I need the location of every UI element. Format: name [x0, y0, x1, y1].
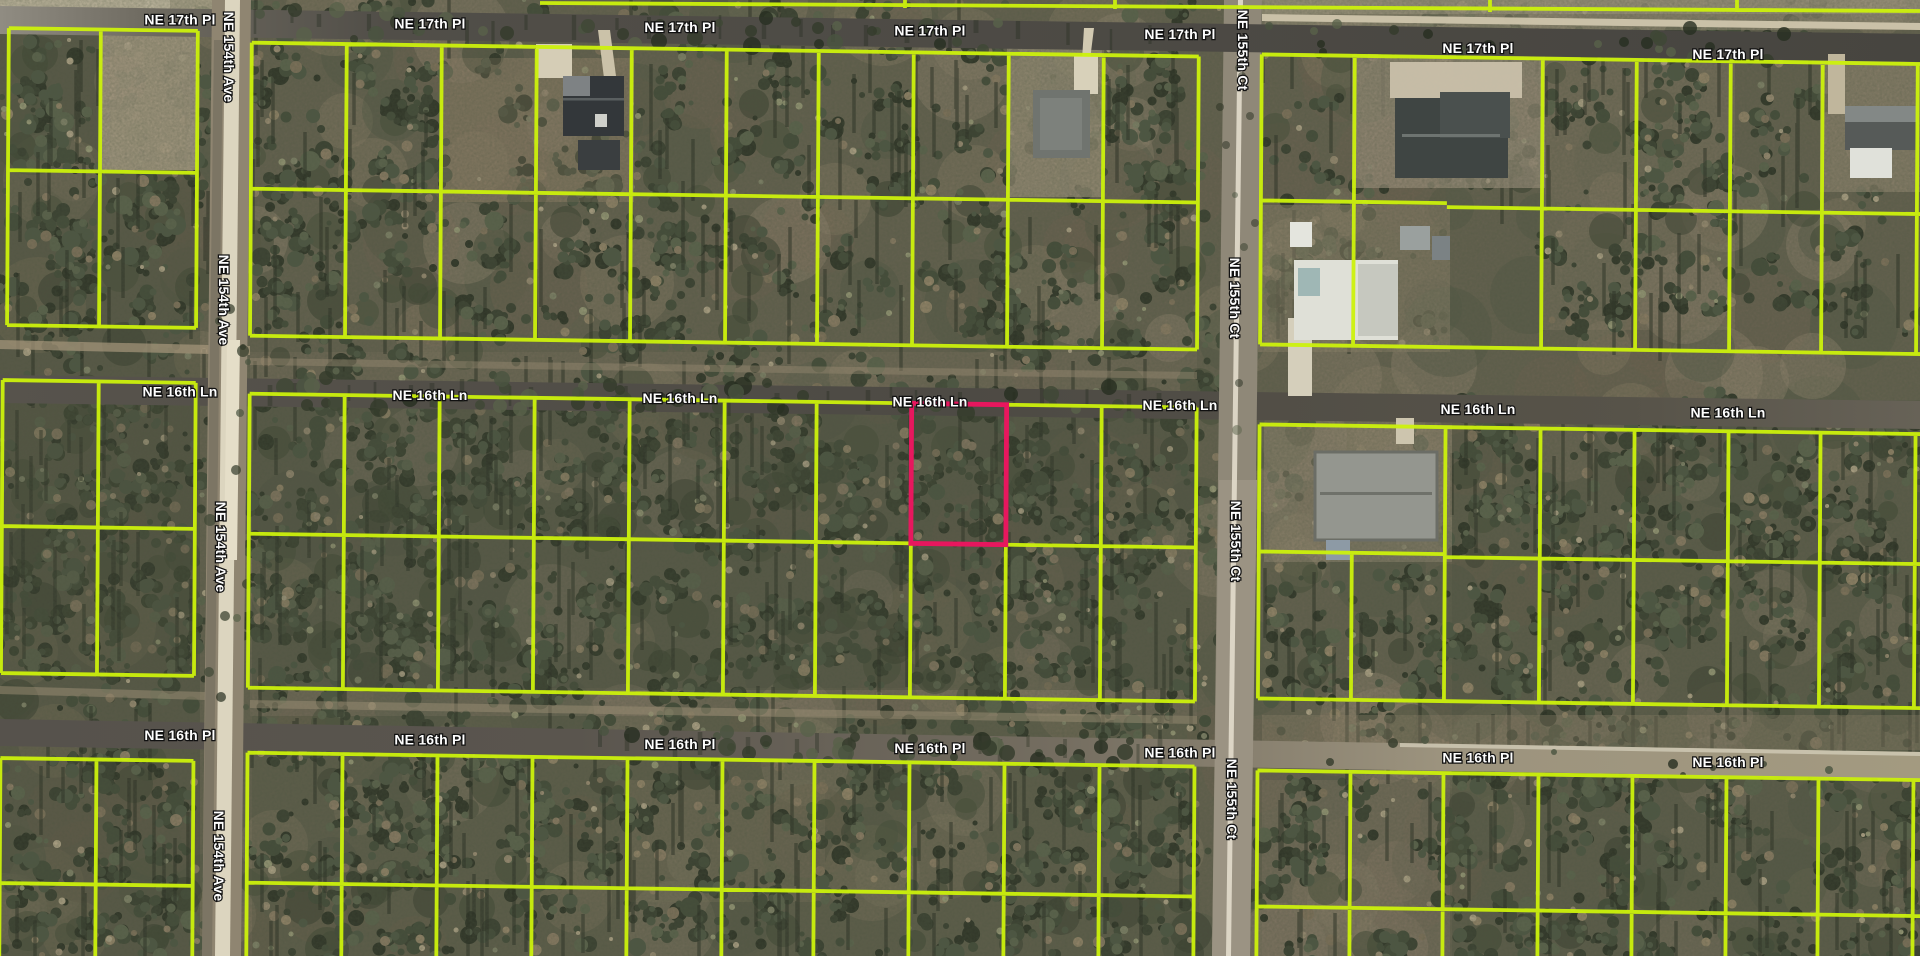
- svg-text:NE 154th Ave: NE 154th Ave: [213, 502, 229, 593]
- svg-text:NE 16th Ln: NE 16th Ln: [1440, 401, 1515, 417]
- svg-text:NE 155th Ct: NE 155th Ct: [1228, 501, 1244, 582]
- svg-text:NE 16th Ln: NE 16th Ln: [1142, 397, 1217, 413]
- svg-text:NE 16th Pl: NE 16th Pl: [394, 731, 465, 747]
- svg-text:NE 154th Ave: NE 154th Ave: [221, 12, 237, 103]
- svg-text:NE 16th Pl: NE 16th Pl: [894, 740, 965, 756]
- svg-text:NE 17th Pl: NE 17th Pl: [1692, 46, 1763, 62]
- svg-text:NE 16th Ln: NE 16th Ln: [142, 383, 217, 399]
- svg-text:NE 17th Pl: NE 17th Pl: [1442, 40, 1513, 56]
- svg-text:NE 155th Ct: NE 155th Ct: [1224, 759, 1240, 840]
- svg-text:NE 17th Pl: NE 17th Pl: [894, 23, 965, 39]
- svg-text:NE 17th Pl: NE 17th Pl: [144, 12, 215, 28]
- svg-text:NE 16th Ln: NE 16th Ln: [1690, 404, 1765, 420]
- svg-text:NE 16th Pl: NE 16th Pl: [1144, 744, 1215, 760]
- svg-text:NE 16th Pl: NE 16th Pl: [644, 736, 715, 752]
- svg-text:NE 17th Pl: NE 17th Pl: [644, 19, 715, 35]
- svg-text:NE 155th Ct: NE 155th Ct: [1227, 258, 1243, 339]
- svg-text:NE 155th Ct: NE 155th Ct: [1235, 10, 1251, 91]
- svg-text:NE 154th Ave: NE 154th Ave: [216, 255, 232, 346]
- svg-text:NE 17th Pl: NE 17th Pl: [394, 15, 465, 31]
- svg-text:NE 16th Ln: NE 16th Ln: [892, 394, 967, 410]
- svg-text:NE 16th Pl: NE 16th Pl: [144, 727, 215, 743]
- svg-text:NE 154th Ave: NE 154th Ave: [211, 811, 227, 902]
- svg-text:NE 16th Ln: NE 16th Ln: [642, 390, 717, 406]
- svg-text:NE 16th Pl: NE 16th Pl: [1442, 750, 1513, 766]
- svg-text:NE 17th Pl: NE 17th Pl: [1144, 26, 1215, 42]
- svg-text:NE 16th Pl: NE 16th Pl: [1692, 754, 1763, 770]
- svg-text:NE 16th Ln: NE 16th Ln: [392, 387, 467, 403]
